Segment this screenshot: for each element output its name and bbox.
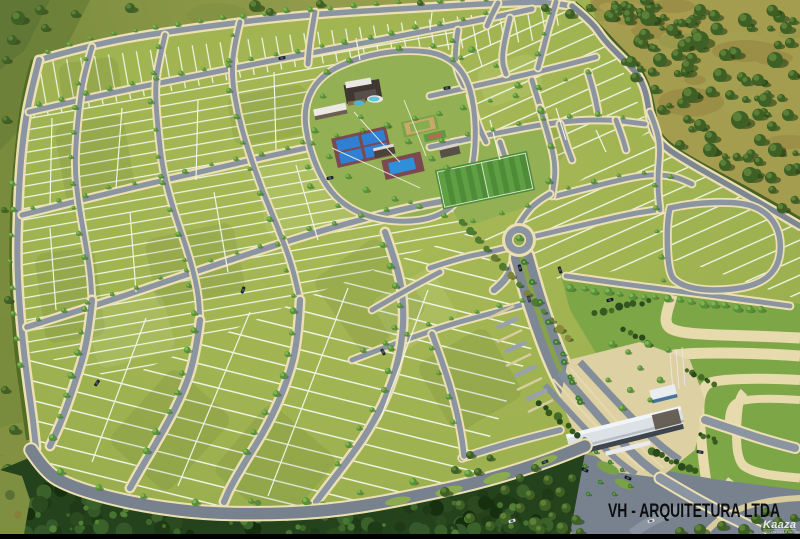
svg-text:VH - ARQUITETURA LTDA: VH - ARQUITETURA LTDA xyxy=(608,500,780,522)
svg-text:ARQUITETURA E DESIGN: ARQUITETURA E DESIGN xyxy=(763,530,800,534)
